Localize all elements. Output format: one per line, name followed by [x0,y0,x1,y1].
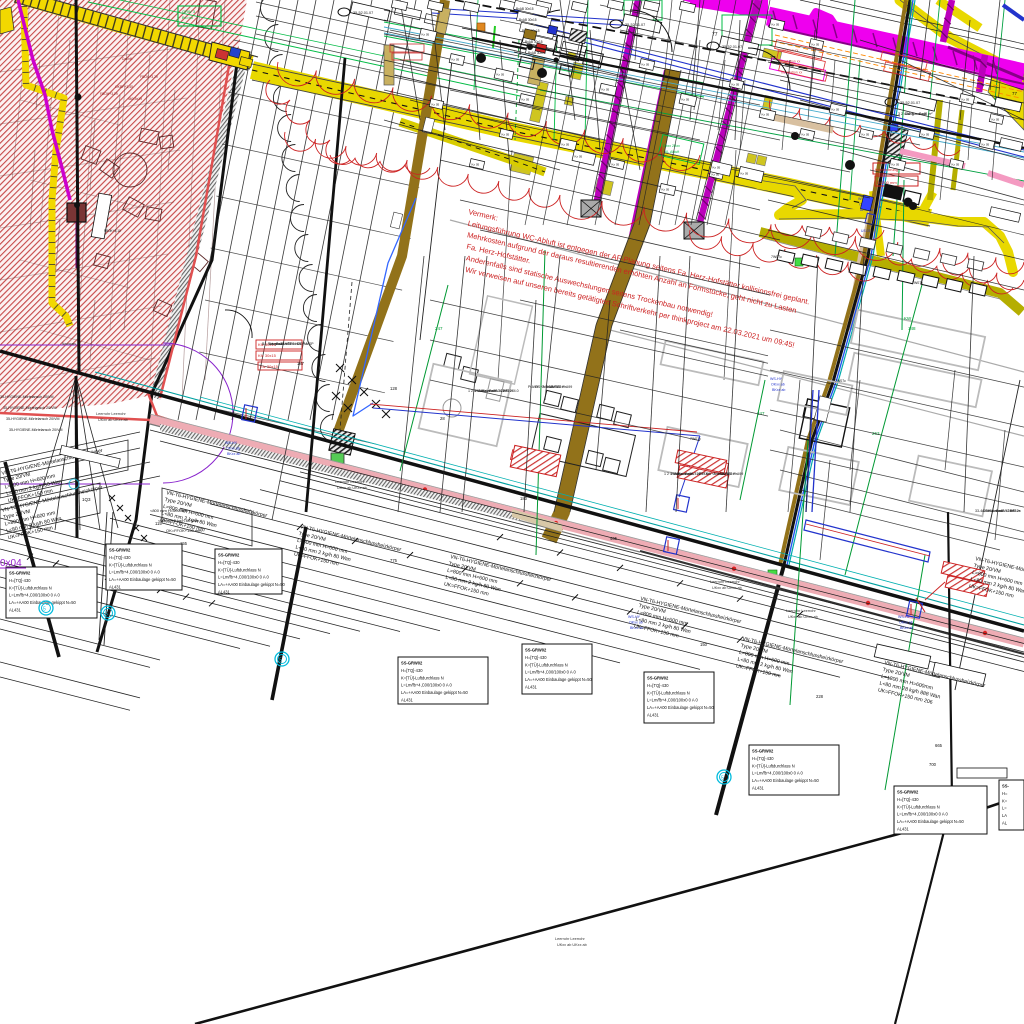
svg-text:BxAB 30x15: BxAB 30x15 [516,7,534,11]
svg-text:Kx 05: Kx 05 [713,166,721,170]
svg-text:H=: H= [1002,791,1008,796]
svg-text:OKRF+3,45: OKRF+3,45 [115,85,133,89]
svg-text:Kx 05: Kx 05 [952,163,960,167]
svg-text:Kx 05: Kx 05 [762,113,770,117]
svg-text:148: 148 [908,326,916,331]
svg-text:AL431: AL431 [647,713,660,718]
svg-text:H=[TQ]-430: H=[TQ]-430 [109,555,131,560]
svg-text:K=[TÜ]-Luftdurchlass N: K=[TÜ]-Luftdurchlass N [897,804,940,809]
svg-text:AL431: AL431 [897,827,910,832]
svg-text:Kx 05: Kx 05 [772,23,780,27]
svg-text:Kx 05: Kx 05 [562,143,570,147]
svg-text:35-HYGIENE-Mörtelansch 20/VM: 35-HYGIENE-Mörtelansch 20/VM [3,406,57,410]
svg-text:BKxx ab: BKxx ab [772,388,785,392]
svg-text:775: 775 [390,558,398,563]
svg-text:SS-GRW02: SS-GRW02 [647,676,669,681]
svg-text:Kx 05: Kx 05 [662,188,670,192]
svg-text:SS-GRW02: SS-GRW02 [9,571,31,576]
svg-text:Installation xx: Installation xx [781,71,802,75]
svg-text:N=SP: N=SP [304,342,314,346]
svg-text:Kx 05: Kx 05 [802,133,810,137]
svg-text:150: 150 [700,642,708,647]
svg-text:Kx 05: Kx 05 [502,133,510,137]
svg-text:L=Lm/fb+4,C00/100x0 0 A 0: L=Lm/fb+4,C00/100x0 0 A 0 [218,575,269,580]
svg-text:F=48 m²: F=48 m² [919,112,933,116]
svg-text:L=Lm/fb+4,C00/100x0 0 A 0: L=Lm/fb+4,C00/100x0 0 A 0 [525,670,576,675]
svg-text:K=: K= [1002,798,1008,803]
svg-text:AL431: AL431 [9,608,22,613]
svg-text:7W07c: 7W07c [690,437,701,441]
svg-text:RbI 2x: RbI 2x [1010,509,1021,513]
svg-text:SS-GRW02: SS-GRW02 [897,790,919,795]
svg-text:Kfz 30x15: Kfz 30x15 [260,364,279,369]
svg-text:LA=+AA00 Einbaulage gekippt N=: LA=+AA00 Einbaulage gekippt N=50 [525,677,593,682]
svg-text:35-52.01.07: 35-52.01.07 [900,101,920,105]
svg-text:K=[TÜ]-Luftdurchlass N: K=[TÜ]-Luftdurchlass N [401,675,444,680]
svg-text:Kx 05: Kx 05 [432,103,440,107]
svg-text:<800 mm H=600 mm: <800 mm H=600 mm [150,508,188,513]
svg-text:BKxx ab: BKxx ab [227,452,240,456]
svg-text:OKxx ab: OKxx ab [899,621,913,625]
svg-text:L=Lm/fb+4,C00/100x0 0 A 0: L=Lm/fb+4,C00/100x0 0 A 0 [9,593,60,598]
svg-text:WS-HY: WS-HY [898,615,911,619]
svg-text:OKxx ab: OKxx ab [771,383,785,387]
svg-text:5: 5 [105,612,108,618]
svg-text:0x04: 0x04 [0,558,22,569]
svg-text:5: 5 [721,776,724,782]
svg-text:OKxx ab: OKxx ab [226,447,240,451]
svg-text:US 07: US 07 [861,229,871,233]
svg-text:465: 465 [610,536,618,541]
svg-text:RbI 274.0: RbI 274.0 [503,389,519,393]
svg-text:128: 128 [390,386,398,391]
svg-text:H=[TQ]-430: H=[TQ]-430 [647,683,669,688]
svg-text:L=Lm/fb+4,C00/100x0 0 A 0: L=Lm/fb+4,C00/100x0 0 A 0 [752,771,803,776]
svg-text:35-52.01.07: 35-52.01.07 [353,11,373,15]
svg-text:35-HYGIENE-Mörtelansch 20/VM: 35-HYGIENE-Mörtelansch 20/VM [0,395,54,399]
svg-text:GRW 3: GRW 3 [182,9,196,14]
svg-text:Kx 05: Kx 05 [602,88,610,92]
svg-text:665: 665 [935,743,943,748]
svg-text:7W07c: 7W07c [912,281,923,285]
svg-text:H=[TQ]-430: H=[TQ]-430 [897,797,919,802]
svg-text:Bx=xx: Bx=xx [182,15,193,20]
svg-text:K=[TÜ]-Luftdurchlass N: K=[TÜ]-Luftdurchlass N [752,763,795,768]
svg-text:460,5x19: 460,5x19 [128,97,142,101]
svg-text:SS-GRW02: SS-GRW02 [401,661,423,666]
svg-text:AL431: AL431 [401,698,414,703]
svg-text:Kx 05: Kx 05 [832,108,840,112]
svg-text:LA=+AA00 Einbaulage gekippt N=: LA=+AA00 Einbaulage gekippt N=50 [401,690,469,695]
svg-text:K=[TÜ]-Luftdurchlass N: K=[TÜ]-Luftdurchlass N [109,562,152,567]
svg-text:KL Abluft: KL Abluft [665,150,679,154]
svg-text:L=Lm/fb+4,C00/100x0 0 A 0: L=Lm/fb+4,C00/100x0 0 A 0 [647,698,698,703]
svg-text:OK=FFOK+150 mm: OK=FFOK+150 mm [166,528,202,533]
svg-text:77: 77 [905,18,911,24]
svg-text:LA=+AA00 Einbaulage gekippt N=: LA=+AA00 Einbaulage gekippt N=50 [218,582,286,587]
svg-text:Kx 05: Kx 05 [962,98,970,102]
svg-text:UKxx ab UKxx ab: UKxx ab UKxx ab [98,418,128,422]
svg-text:K=[TÜ]-Luftdurchlass N: K=[TÜ]-Luftdurchlass N [647,690,690,695]
svg-text:180: 180 [520,496,528,501]
svg-text:AL431: AL431 [525,685,538,690]
svg-text:700: 700 [929,762,937,767]
svg-text:AL431: AL431 [218,590,231,595]
svg-text:Kx 05: Kx 05 [992,118,1000,122]
svg-text:BxAB 30x15: BxAB 30x15 [519,18,537,22]
svg-text:<80 mm 2 kg/h 80 Wan: <80 mm 2 kg/h 80 Wan [158,518,199,523]
svg-text:Leerrohr Leerrohr: Leerrohr Leerrohr [710,580,740,584]
svg-text:SS-GRW02: SS-GRW02 [109,548,131,553]
svg-text:Leerrohr Leerrohr: Leerrohr Leerrohr [335,480,365,484]
svg-text:SS-: SS- [1002,784,1009,789]
svg-text:Kx 05: Kx 05 [982,143,990,147]
svg-text:5: 5 [279,658,282,664]
svg-text:BKxx ab: BKxx ab [900,626,913,630]
svg-text:NAP 42 PrA99: NAP 42 PrA99 [549,385,572,389]
svg-text:K=[TÜ]-Luftdurchlass N: K=[TÜ]-Luftdurchlass N [218,567,261,572]
svg-text:Kx 05: Kx 05 [862,133,870,137]
svg-text:H=[TQ]-430: H=[TQ]-430 [218,560,240,565]
svg-text:77: 77 [1012,91,1018,96]
svg-text:Nachweis: Nachweis [62,342,76,346]
svg-text:35-HYGIENE-Mörtelansch 20/VM: 35-HYGIENE-Mörtelansch 20/VM [9,428,63,432]
svg-text:Kx 05: Kx 05 [892,163,900,167]
svg-text:UKxx ab UKxx ab: UKxx ab UKxx ab [712,586,742,590]
svg-text:LA=+AA00 Einbaulage gekippt N=: LA=+AA00 Einbaulage gekippt N=50 [897,819,965,824]
svg-text:LA=+AA00 Einbaulage gekippt N=: LA=+AA00 Einbaulage gekippt N=50 [109,577,177,582]
svg-text:5: 5 [43,607,46,613]
svg-text:SS-GRW02: SS-GRW02 [752,749,774,754]
svg-text:H=[TQ]-430: H=[TQ]-430 [9,578,31,583]
svg-text:KW: KW [904,316,912,321]
svg-text:247: 247 [435,326,443,331]
svg-text:7W07c: 7W07c [771,255,782,259]
svg-text:LA=+AA00 Einbaulage gekippt N=: LA=+AA00 Einbaulage gekippt N=50 [752,778,820,783]
svg-text:Kx 05: Kx 05 [682,98,690,102]
svg-text:UKxx ab UKxx ab: UKxx ab UKxx ab [788,615,818,619]
svg-text:Leerrohr Leerrohr: Leerrohr Leerrohr [786,609,816,613]
svg-text:28: 28 [440,416,445,421]
svg-text:Kx 05: Kx 05 [732,83,740,87]
svg-text:AL431: AL431 [109,585,122,590]
svg-text:1Q3: 1Q3 [82,497,91,502]
svg-text:AL: AL [1002,821,1008,826]
svg-text:Kx 05: Kx 05 [741,172,749,176]
svg-text:LA: LA [1002,813,1007,818]
svg-text:Kx 05: Kx 05 [575,155,583,159]
svg-text:L=Lm/fb+4,C00/100x0 0 A 0: L=Lm/fb+4,C00/100x0 0 A 0 [401,683,452,688]
svg-text:FBOK+3,29: FBOK+3,29 [140,75,158,79]
svg-text:Kx 05: Kx 05 [812,43,820,47]
svg-text:228: 228 [816,694,824,699]
svg-text:Dxxx 2Bxx: Dxxx 2Bxx [663,144,680,148]
svg-text:L=: L= [1002,806,1007,811]
svg-text:Leerrohr Leerrohr: Leerrohr Leerrohr [96,412,126,416]
svg-text:H=[TQ]-430: H=[TQ]-430 [752,756,774,761]
svg-text:WS-HY: WS-HY [770,377,783,381]
svg-text:Kx 05: Kx 05 [922,133,930,137]
svg-text:SS-GRW02: SS-GRW02 [525,648,547,653]
svg-text:WS-HY: WS-HY [225,441,238,445]
svg-text:SS-GRW02: SS-GRW02 [218,553,240,558]
svg-text:H=[TQ]-430: H=[TQ]-430 [401,668,423,673]
svg-text:UKxx ab UKxx ab: UKxx ab UKxx ab [337,486,367,490]
svg-text:L=Lm/fb+4,C00/100x0 0 A 0: L=Lm/fb+4,C00/100x0 0 A 0 [109,570,160,575]
svg-text:Kx 05: Kx 05 [522,98,530,102]
svg-text:187: 187 [297,361,305,366]
svg-text:Installation xx: Installation xx [777,49,798,53]
svg-text:H=[TQ]-430: H=[TQ]-430 [525,655,547,660]
svg-text:Kx 05: Kx 05 [452,58,460,62]
svg-text:Kfz 30x15: Kfz 30x15 [258,353,277,358]
svg-text:Kx 05: Kx 05 [422,33,430,37]
svg-text:Kx 05: Kx 05 [612,163,620,167]
svg-text:K=[TÜ]-Luftdurchlass N: K=[TÜ]-Luftdurchlass N [9,585,52,590]
svg-text:7W07c: 7W07c [835,379,846,383]
svg-text:FBOK+3,29: FBOK+3,29 [100,92,118,96]
svg-text:Kx 05: Kx 05 [472,163,480,167]
svg-text:L=Lm/fb+4,C00/100x0 0 A 0: L=Lm/fb+4,C00/100x0 0 A 0 [897,812,948,817]
svg-text:LA=+AA00 Einbaulage gekippt N=: LA=+AA00 Einbaulage gekippt N=50 [647,705,715,710]
svg-text:FBOK+3,10: FBOK+3,10 [104,229,121,233]
svg-text:NAP 42 PrA99: NAP 42 PrA99 [720,472,743,476]
svg-text:Dachfl.: Dachfl. [122,57,133,61]
svg-text:AL431: AL431 [752,786,765,791]
svg-text:UKxx ab UKxx ab: UKxx ab UKxx ab [557,943,587,947]
svg-text:35-HYGIENE-Mörtelansch 20/VM: 35-HYGIENE-Mörtelansch 20/VM [6,417,60,421]
svg-text:Kx 05: Kx 05 [497,73,505,77]
svg-text:Kx 05: Kx 05 [642,63,650,67]
svg-text:Leerrohr Leerrohr: Leerrohr Leerrohr [555,937,585,941]
svg-text:K=[TÜ]-Luftdurchlass N: K=[TÜ]-Luftdurchlass N [525,662,568,667]
